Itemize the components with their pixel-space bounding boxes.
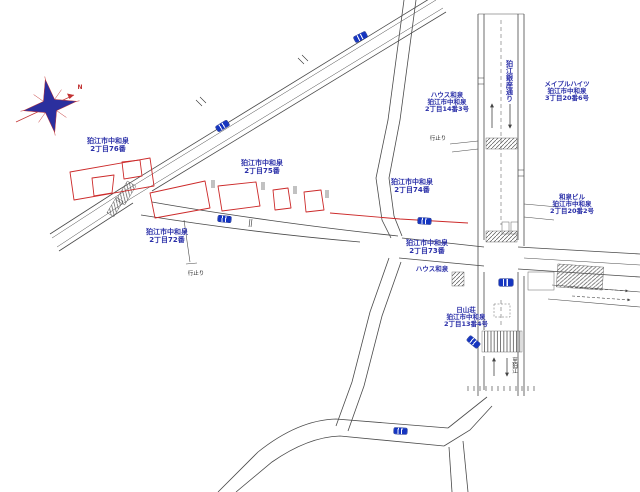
building-label-maple-heights: メイプルハイツ 狛江市中和泉 3丁目20番6号 [544,81,589,102]
dead-end-label-east: 行止り [430,136,447,142]
route-plate-icon [217,215,231,222]
compass-rose [16,77,80,136]
building-label-hiyamaso: 日山荘 狛江市中和泉 2丁目13番4号 [444,307,488,328]
building-label-house-mid: ハウス和泉 [416,266,449,273]
road-lines [50,0,640,492]
area-label-72: 狛江市中和泉 2丁目72番 [146,229,188,244]
route-plate-icon [499,279,513,286]
map-canvas: 狛江市中和泉 2丁目76番 狛江市中和泉 2丁目75番 狛江市中和泉 2丁目72… [0,0,640,492]
area-label-76: 狛江市中和泉 2丁目76番 [87,138,129,153]
crosswalk-hatches [107,138,604,352]
area-label-73: 狛江市中和泉 2丁目73番 [406,240,448,255]
area-label-74: 狛江市中和泉 2丁目74番 [391,179,433,194]
area-label-75: 狛江市中和泉 2丁目75番 [241,160,283,175]
route-plate-icon [417,218,430,225]
street-name-label: 狛江銀座通り [505,60,513,102]
building-label-house-north: ハウス和泉 狛江市中和泉 2丁目14番3号 [425,92,469,113]
route-plate-icon [393,428,406,435]
dead-end-label-west: 行止り [188,271,205,277]
building-label-izumi-building: 和泉ビル 狛江市中和泉 2丁目20番2号 [550,194,594,215]
compass-north-label: N [77,85,82,91]
direction-label-south: 至狛江 [511,357,517,374]
map-drawing [0,0,640,492]
